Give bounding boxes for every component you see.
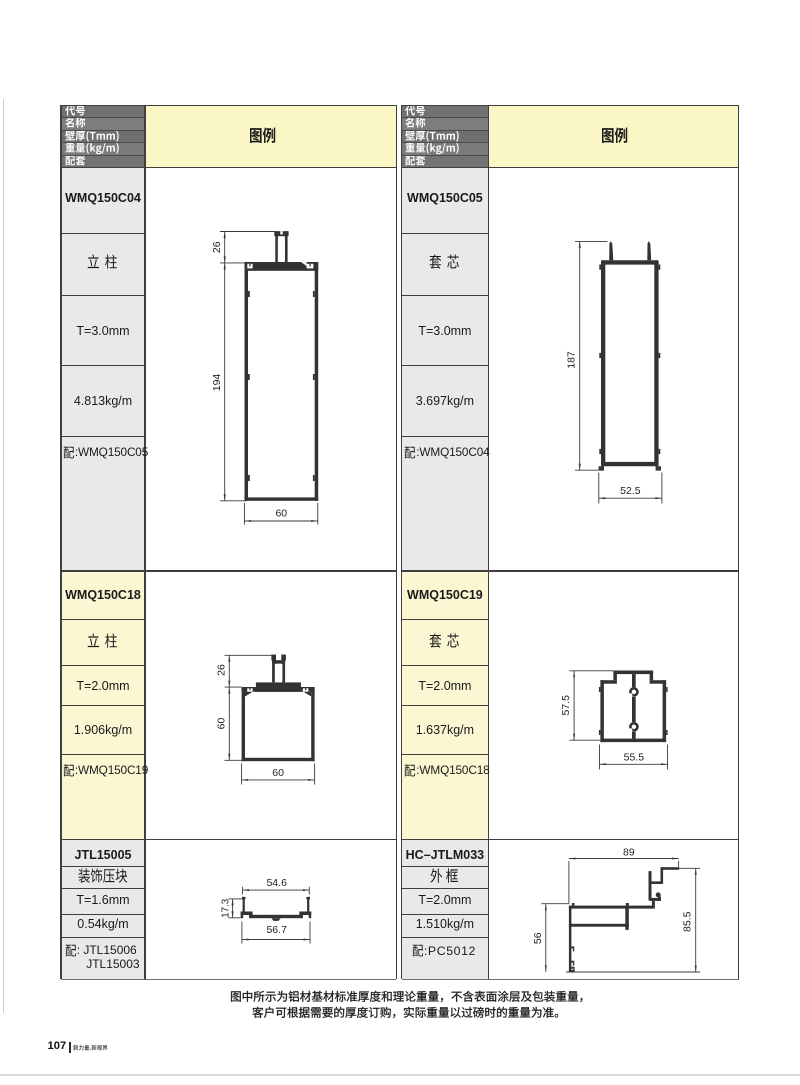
svg-text:85.5: 85.5 xyxy=(682,911,694,932)
svg-text:89: 89 xyxy=(623,846,635,858)
svg-text:52.5: 52.5 xyxy=(620,485,641,497)
svg-text:26: 26 xyxy=(211,241,223,253)
svg-text:57.5: 57.5 xyxy=(560,695,572,716)
svg-text:56: 56 xyxy=(532,932,544,944)
svg-text:26: 26 xyxy=(216,664,228,676)
svg-text:60: 60 xyxy=(216,718,228,730)
svg-text:55.5: 55.5 xyxy=(624,751,645,763)
svg-text:56.7: 56.7 xyxy=(266,924,287,936)
svg-text:187: 187 xyxy=(566,351,578,369)
svg-text:60: 60 xyxy=(272,767,284,779)
svg-text:60: 60 xyxy=(275,508,287,520)
svg-text:17.3: 17.3 xyxy=(221,898,232,918)
svg-text:194: 194 xyxy=(211,374,223,392)
svg-text:54.6: 54.6 xyxy=(266,877,287,889)
